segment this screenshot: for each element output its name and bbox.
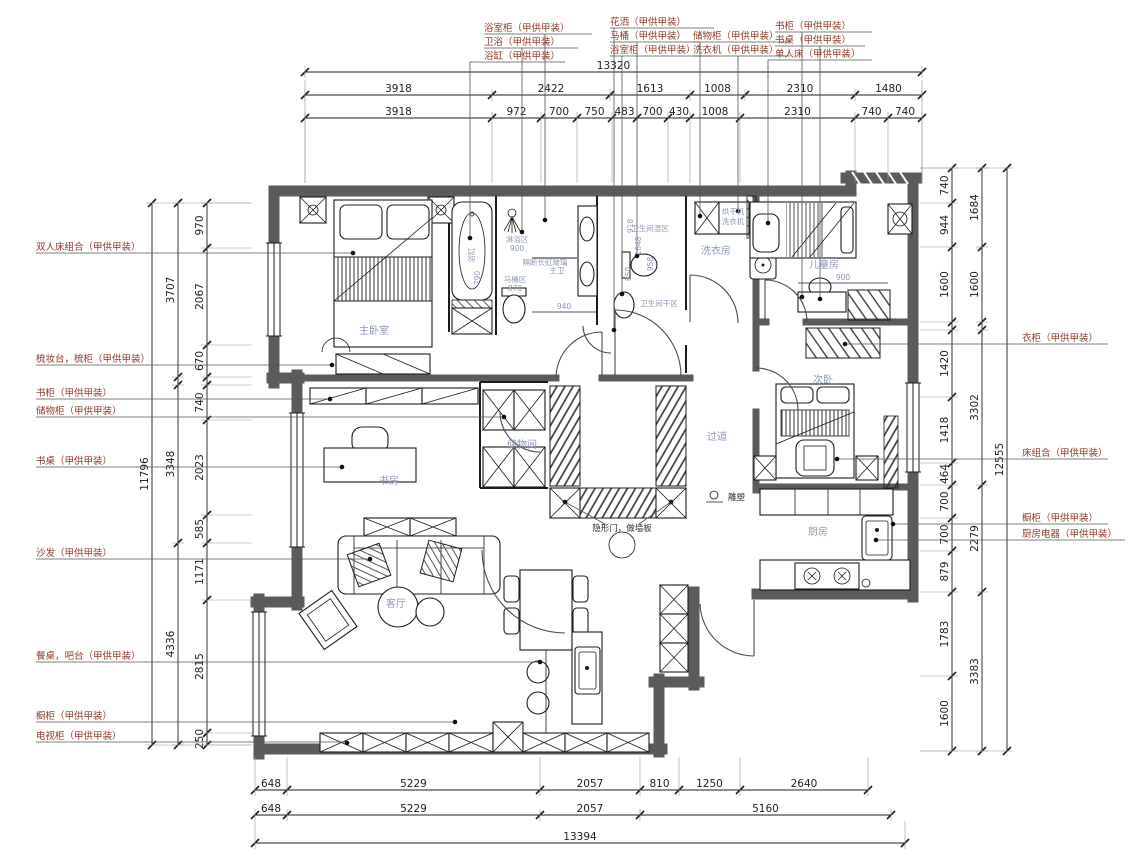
dim-value: 3918 bbox=[385, 83, 412, 95]
dim-value: 13394 bbox=[563, 831, 597, 843]
dim-value: 1418 bbox=[939, 417, 951, 444]
room-label-master: 主卧室 bbox=[359, 324, 389, 337]
room-label-hallway: 过道 bbox=[707, 430, 727, 443]
dim-value: 879 bbox=[939, 561, 951, 581]
dim-value: 648 bbox=[261, 778, 281, 790]
dim-value: 970 bbox=[194, 215, 206, 235]
dim-value: 1613 bbox=[637, 83, 664, 95]
second-bed bbox=[776, 384, 854, 478]
room-label-laundry: 洗衣房 bbox=[701, 244, 731, 257]
dim-value: 2310 bbox=[784, 106, 811, 118]
dim-value: 700 bbox=[642, 106, 662, 118]
dim-chain-right-mid: 16841600330222793383 bbox=[969, 164, 988, 755]
dim-value: 2310 bbox=[787, 83, 814, 95]
dim-value: 700 bbox=[549, 106, 569, 118]
inner-dim: 870 bbox=[508, 284, 523, 293]
callout-top: 浴室柜（甲供甲装） bbox=[484, 22, 570, 34]
dim-value: 3918 bbox=[385, 106, 412, 118]
floor-plan-canvas: 1332039182422161310082310148039189727007… bbox=[0, 0, 1141, 861]
kids-bed bbox=[750, 202, 856, 258]
dim-chain-bottom-total: 13394 bbox=[251, 821, 909, 849]
dim-value: 430 bbox=[669, 106, 689, 118]
anno-washer: 洗衣机 bbox=[722, 216, 745, 226]
dim-value: 1684 bbox=[969, 194, 981, 221]
dim-value: 2023 bbox=[194, 454, 206, 481]
dim-value: 740 bbox=[194, 392, 206, 412]
anno-partition-glass: 隔断长虹玻璃 bbox=[523, 257, 568, 267]
room-label-bath-wet: 卫生间湿区 bbox=[631, 223, 669, 233]
callout-left: 书桌（甲供甲装） bbox=[36, 455, 112, 467]
dim-value: 585 bbox=[194, 519, 206, 539]
dim-value: 1008 bbox=[704, 83, 731, 95]
dim-value: 3348 bbox=[165, 451, 177, 478]
corridor-closets bbox=[550, 386, 686, 518]
dim-chain-left-inner: 9702067670740202358511712815250 bbox=[194, 199, 252, 749]
dim-value: 5229 bbox=[400, 803, 427, 815]
dim-chain-top-row1: 391824221613100823101480 bbox=[301, 83, 926, 101]
callout-top: 书桌（甲供甲装） bbox=[775, 34, 851, 46]
zone-label-shower: 淋浴区 bbox=[506, 234, 529, 244]
shared-bath-door bbox=[615, 310, 681, 376]
callout-top: 储物柜（甲供甲装） bbox=[693, 30, 779, 42]
dim-value: 5229 bbox=[400, 778, 427, 790]
dim-value: 13320 bbox=[597, 60, 630, 72]
callout-left: 电视柜（甲供甲装） bbox=[36, 730, 122, 742]
callout-top: 花洒（甲供甲装） bbox=[610, 16, 686, 28]
master-door bbox=[556, 332, 602, 378]
dim-chain-right-total: 12555 bbox=[920, 164, 1013, 755]
stove bbox=[795, 563, 859, 589]
tv-cabinet-row bbox=[320, 722, 649, 752]
dim-chain-top-row2: 391897270075048370043010082310740740 bbox=[301, 106, 926, 183]
shower-head-icon bbox=[504, 209, 520, 233]
room-label-kitchen: 厨房 bbox=[808, 525, 828, 538]
dim-value: 2067 bbox=[194, 283, 206, 310]
dim-value: 250 bbox=[194, 729, 206, 749]
bookshelf bbox=[310, 388, 478, 404]
dim-chain-left-mid: 370733484336 bbox=[165, 199, 184, 749]
room-label-storage: 储物间 bbox=[507, 438, 537, 451]
callout-top: 洗衣机（甲供甲装） bbox=[693, 44, 779, 56]
dim-value: 1171 bbox=[194, 558, 206, 585]
window-master-left bbox=[266, 243, 282, 336]
dim-value: 1008 bbox=[702, 106, 729, 118]
dim-value: 700 bbox=[939, 491, 951, 511]
dim-value: 1600 bbox=[939, 700, 951, 727]
callout-top: 单人床（甲供甲装） bbox=[775, 48, 861, 60]
laundry-door bbox=[690, 275, 738, 323]
callout-right: 厨房电器（甲供甲装） bbox=[1022, 528, 1117, 540]
dim-chain-right-inner: 74094416001420141846470070087917831600 bbox=[920, 164, 958, 755]
accent-chair bbox=[299, 591, 357, 650]
dim-value: 5160 bbox=[752, 803, 779, 815]
dim-value: 1783 bbox=[939, 621, 951, 648]
nightstand-left bbox=[300, 197, 326, 223]
room-label-second: 次卧 bbox=[813, 373, 833, 386]
inner-dim: 900 bbox=[510, 244, 525, 253]
dim-value: 810 bbox=[649, 778, 669, 790]
anno-sculpture: 雕塑 bbox=[728, 492, 746, 503]
callout-left: 沙发（甲供甲装） bbox=[36, 547, 112, 559]
callout-top: 卫浴（甲供甲装） bbox=[484, 36, 560, 48]
sofa bbox=[338, 536, 500, 594]
master-vanity bbox=[578, 206, 597, 296]
callout-right: 床组合（甲供甲装） bbox=[1022, 447, 1108, 459]
dim-chain-top-total: 13320 bbox=[301, 60, 926, 183]
callout-right: 衣柜（甲供甲装） bbox=[1022, 332, 1098, 344]
bar-counter bbox=[572, 632, 602, 724]
dim-value: 1250 bbox=[696, 778, 723, 790]
dim-value: 2057 bbox=[577, 803, 604, 815]
master-bath-door bbox=[583, 326, 611, 353]
dim-value: 740 bbox=[895, 106, 915, 118]
dim-chain-bottom-row1: 6485229205781012502640 bbox=[251, 757, 872, 796]
bath-sill bbox=[452, 300, 492, 308]
window-study-left bbox=[289, 413, 305, 547]
plant-icon bbox=[888, 204, 912, 234]
callout-right: 橱柜（甲供甲装） bbox=[1022, 512, 1098, 524]
dim-value: 740 bbox=[861, 106, 881, 118]
side-cabinet bbox=[884, 416, 898, 488]
inner-dim: 958 bbox=[646, 257, 655, 272]
kitchen-counter-top bbox=[760, 489, 893, 515]
dim-value: 1600 bbox=[969, 271, 981, 298]
dim-value: 1480 bbox=[875, 83, 902, 95]
room-label-living: 客厅 bbox=[386, 597, 406, 610]
shared-basin bbox=[614, 292, 634, 318]
anno-dryer: 烘干机 bbox=[722, 206, 745, 216]
kids-cabinet bbox=[848, 290, 890, 320]
callout-top: 浴缸（甲供甲装） bbox=[484, 50, 560, 62]
dim-value: 12555 bbox=[994, 443, 1006, 476]
callout-left: 双人床组合（甲供甲装） bbox=[36, 241, 141, 253]
dim-value: 464 bbox=[939, 464, 951, 484]
dim-value: 2815 bbox=[194, 653, 206, 680]
zone-label-toilet: 马桶区 bbox=[504, 274, 527, 284]
callout-left: 储物柜（甲供甲装） bbox=[36, 405, 122, 417]
dim-value: 1600 bbox=[939, 271, 951, 298]
dim-value: 944 bbox=[939, 215, 951, 235]
dim-chain-bottom-row2: 648522920575160 bbox=[251, 803, 895, 821]
room-label-study: 书房 bbox=[379, 474, 399, 487]
zone-label-bathtub: 浴缸 bbox=[466, 247, 476, 262]
room-label-bath-dry: 卫生间干区 bbox=[640, 298, 678, 308]
floor-plan-page: 1332039182422161310082310148039189727007… bbox=[0, 0, 1141, 861]
foyer-cabinet bbox=[660, 585, 688, 672]
inner-dim: 940 bbox=[557, 302, 572, 311]
dim-value: 3707 bbox=[165, 277, 177, 304]
window-living-left bbox=[251, 612, 267, 736]
room-label-kids: 儿童房 bbox=[809, 258, 839, 271]
dim-value: 2279 bbox=[969, 525, 981, 552]
inner-dim: 918 bbox=[626, 219, 635, 234]
dim-value: 2057 bbox=[577, 778, 604, 790]
callout-left: 书柜（甲供甲装） bbox=[36, 387, 112, 399]
dim-value: 11796 bbox=[139, 457, 151, 491]
dim-value: 1420 bbox=[939, 350, 951, 377]
sofa-console bbox=[364, 518, 456, 536]
hidden-door-symbol bbox=[609, 532, 635, 558]
dim-value: 3383 bbox=[969, 658, 981, 685]
dim-value: 2640 bbox=[791, 778, 818, 790]
inner-dim: 1648 bbox=[634, 236, 643, 255]
callout-top: 书柜（甲供甲装） bbox=[775, 20, 851, 32]
entry-door bbox=[700, 600, 754, 656]
master-bed bbox=[334, 200, 432, 347]
anno-hidden-door: 隐形门，做墙板 bbox=[592, 523, 652, 534]
callout-top: 浴室柜（甲供甲装） bbox=[610, 44, 696, 56]
sculpture-icon bbox=[706, 491, 723, 502]
dim-value: 972 bbox=[506, 106, 526, 118]
dim-value: 483 bbox=[614, 106, 634, 118]
dim-value: 4336 bbox=[165, 630, 177, 657]
dim-value: 750 bbox=[584, 106, 604, 118]
callout-left: 橱柜（甲供甲装） bbox=[36, 710, 112, 722]
inner-dim: 900 bbox=[836, 273, 851, 282]
inner-dim: 790 bbox=[473, 271, 482, 286]
dim-value: 3302 bbox=[969, 394, 981, 421]
dim-value: 740 bbox=[939, 175, 951, 195]
inner-dim: 850 bbox=[624, 267, 633, 282]
dim-value: 670 bbox=[194, 351, 206, 371]
callout-left: 餐桌，吧台（甲供甲装） bbox=[36, 650, 141, 662]
dim-value: 700 bbox=[939, 524, 951, 544]
callout-top: 马桶（甲供甲装） bbox=[610, 30, 686, 42]
master-toilet bbox=[502, 288, 526, 323]
study-desk bbox=[324, 427, 416, 482]
dim-value: 2422 bbox=[538, 83, 565, 95]
dim-value: 648 bbox=[261, 803, 281, 815]
callout-left: 梳妆台，梳柜（甲供甲装） bbox=[36, 353, 150, 365]
storage-cabinets bbox=[483, 390, 545, 487]
